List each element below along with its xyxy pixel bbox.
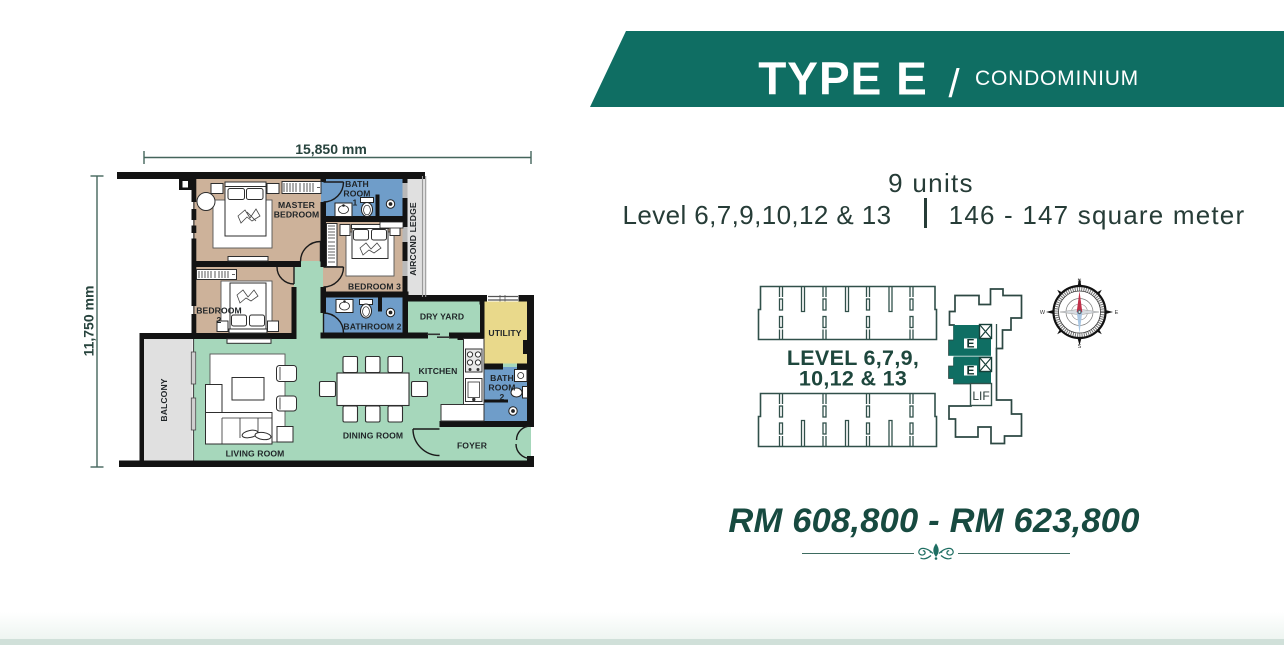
svg-text:2: 2	[217, 315, 222, 325]
svg-text:FOYER: FOYER	[457, 441, 488, 451]
svg-text:E: E	[966, 337, 974, 351]
svg-text:CONDOMINIUM: CONDOMINIUM	[975, 67, 1139, 90]
svg-text:BATH: BATH	[490, 373, 514, 383]
svg-text:BALCONY: BALCONY	[159, 378, 169, 421]
svg-text:E: E	[1115, 310, 1119, 316]
svg-text:LIF: LIF	[972, 389, 989, 403]
svg-text:Level 6,7,9,10,12 & 13: Level 6,7,9,10,12 & 13	[622, 200, 891, 230]
svg-text:KITCHEN: KITCHEN	[419, 366, 458, 376]
svg-text:E: E	[966, 364, 974, 378]
svg-text:BATHROOM 2: BATHROOM 2	[343, 322, 401, 332]
svg-text:146 - 147 square meter: 146 - 147 square meter	[949, 200, 1246, 230]
svg-text:2: 2	[500, 392, 505, 402]
svg-text:BEDROOM 3: BEDROOM 3	[348, 282, 401, 292]
svg-text:/: /	[948, 62, 960, 106]
svg-text:TYPE E: TYPE E	[758, 53, 928, 105]
svg-text:10,12 & 13: 10,12 & 13	[799, 367, 907, 391]
svg-text:DINING ROOM: DINING ROOM	[343, 431, 403, 441]
svg-text:UTILITY: UTILITY	[488, 328, 521, 338]
svg-text:BEDROOM: BEDROOM	[196, 306, 242, 316]
svg-text:RM 608,800 - RM 623,800: RM 608,800 - RM 623,800	[728, 502, 1139, 540]
svg-text:AIRCOND LEDGE: AIRCOND LEDGE	[408, 202, 418, 276]
svg-text:DRY YARD: DRY YARD	[420, 312, 464, 322]
svg-text:LIVING ROOM: LIVING ROOM	[226, 449, 285, 459]
svg-text:MASTER: MASTER	[278, 200, 316, 210]
svg-text:9 units: 9 units	[888, 168, 974, 198]
svg-text:S: S	[1078, 344, 1082, 350]
svg-text:1: 1	[353, 197, 358, 207]
svg-text:15,850 mm: 15,850 mm	[295, 141, 367, 157]
svg-text:11,750 mm: 11,750 mm	[81, 286, 97, 357]
svg-text:ROOM: ROOM	[488, 383, 515, 393]
svg-text:BEDROOM: BEDROOM	[274, 210, 320, 220]
svg-text:N: N	[1078, 279, 1082, 285]
svg-text:W: W	[1040, 310, 1046, 316]
